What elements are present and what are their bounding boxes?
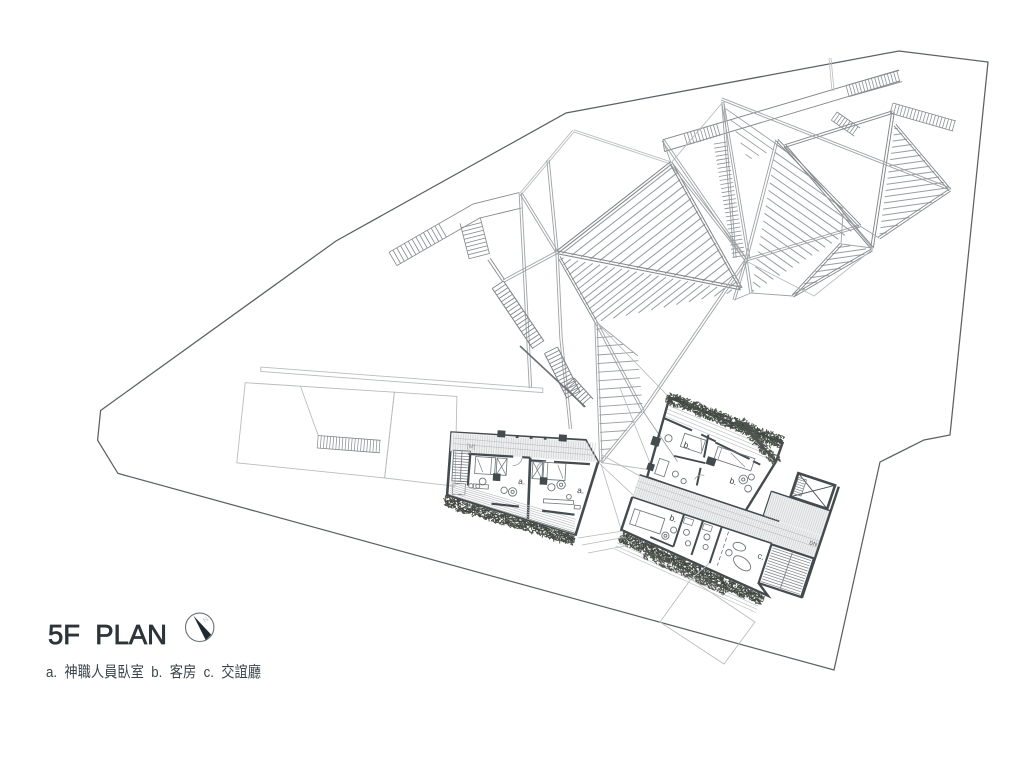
svg-text:a.: a. bbox=[577, 485, 585, 495]
svg-text:5F PLAN: 5F PLAN bbox=[48, 619, 167, 650]
svg-text:a.: a. bbox=[518, 476, 526, 486]
svg-text:[M]: [M] bbox=[467, 444, 476, 451]
svg-text:a. 神職人員臥室 b. 客房 c. 交誼廳: a. 神職人員臥室 b. 客房 c. 交誼廳 bbox=[46, 663, 261, 681]
